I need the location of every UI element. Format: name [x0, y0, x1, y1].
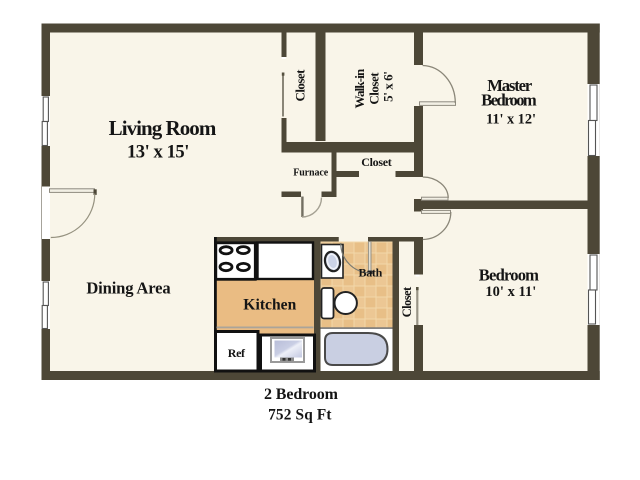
svg-text:Closet: Closet — [400, 286, 414, 317]
svg-text:13' x 15': 13' x 15' — [127, 141, 190, 162]
svg-text:Living Room: Living Room — [109, 116, 217, 140]
svg-text:Bedroom: Bedroom — [481, 90, 537, 109]
svg-text:Dining Area: Dining Area — [86, 278, 171, 297]
svg-text:Closet: Closet — [361, 155, 392, 169]
svg-text:Furnace: Furnace — [293, 168, 329, 179]
svg-text:5' x 6': 5' x 6' — [381, 71, 396, 102]
svg-text:Ref: Ref — [228, 346, 246, 360]
svg-text:Kitchen: Kitchen — [243, 297, 296, 314]
svg-text:752 Sq Ft: 752 Sq Ft — [268, 407, 332, 424]
svg-text:Closet: Closet — [292, 69, 307, 102]
svg-text:Walk-in: Walk-in — [352, 68, 367, 108]
svg-text:Bath: Bath — [359, 266, 383, 280]
svg-text:Bedroom: Bedroom — [479, 265, 539, 284]
svg-text:Closet: Closet — [367, 72, 382, 105]
svg-text:2 Bedroom: 2 Bedroom — [264, 386, 339, 403]
svg-text:11' x 12': 11' x 12' — [486, 112, 536, 128]
svg-text:10' x 11': 10' x 11' — [485, 284, 536, 300]
